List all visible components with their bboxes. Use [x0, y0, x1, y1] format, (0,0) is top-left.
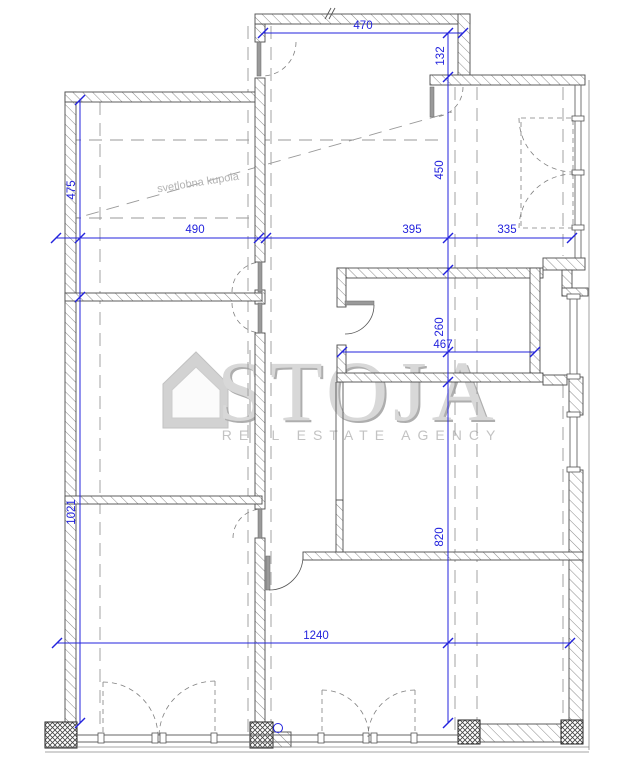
floor-plan-page: STOJA STOJA REAL ESTATE AGENCY svetlobna… — [0, 0, 630, 768]
door-leaf — [430, 87, 434, 117]
wall-segment — [543, 258, 585, 270]
door-swing — [103, 682, 158, 737]
door-swing — [322, 690, 369, 737]
dim-label-1240: 1240 — [303, 630, 329, 642]
wall-segment — [530, 268, 540, 382]
skylight-label: svetlobna kupola — [156, 170, 240, 195]
dim-label-450: 450 — [434, 160, 446, 179]
door-leaf — [258, 303, 262, 333]
dim-label-335: 335 — [497, 224, 516, 236]
jamb — [318, 733, 324, 743]
column — [458, 720, 480, 744]
wall-segment — [255, 538, 265, 735]
jamb — [567, 294, 580, 299]
jamb — [152, 733, 158, 743]
door-swing — [232, 303, 262, 333]
floor-plan-svg: STOJA STOJA REAL ESTATE AGENCY svetlobna… — [0, 0, 630, 768]
wall-segment — [65, 92, 262, 102]
wall-segment — [569, 470, 583, 555]
wall-segment — [65, 496, 262, 504]
door-swing — [519, 118, 573, 172]
jamb — [211, 733, 217, 743]
wall-segment — [430, 75, 585, 85]
jamb — [567, 467, 580, 472]
door-leaf — [258, 509, 262, 538]
dimension-labels: 470 132 475 490 395 335 450 260 467 1021… — [66, 20, 517, 642]
wall-segment — [337, 373, 543, 382]
jamb — [411, 733, 417, 743]
door-leaf — [257, 42, 261, 76]
wall-segment — [337, 268, 346, 307]
watermark: STOJA STOJA REAL ESTATE AGENCY — [163, 343, 502, 443]
jamb — [572, 170, 584, 175]
door-leaf — [345, 301, 374, 305]
door-swing — [159, 681, 215, 737]
dim-label-1021: 1021 — [66, 499, 78, 525]
door-leaf — [266, 556, 270, 590]
dim-label-132: 132 — [435, 46, 447, 65]
door-swing — [519, 174, 573, 228]
marker-circle — [274, 724, 283, 733]
door-swing — [233, 509, 262, 538]
column — [561, 720, 583, 744]
jamb — [98, 733, 104, 743]
jamb — [363, 733, 369, 743]
jamb — [572, 116, 584, 121]
wall-segment — [336, 500, 343, 552]
door-leaves — [257, 42, 434, 590]
jamb — [567, 374, 580, 379]
door-swing — [345, 305, 374, 334]
door-swing — [262, 42, 296, 76]
jamb — [572, 225, 584, 230]
dim-label-260: 260 — [434, 317, 446, 336]
wall-segment — [303, 552, 583, 560]
dim-label-470: 470 — [353, 20, 372, 32]
dim-label-820: 820 — [434, 527, 446, 546]
wall-segment — [569, 377, 583, 415]
dim-label-490: 490 — [185, 224, 204, 236]
wall-segment — [255, 333, 265, 509]
wall-step — [273, 732, 291, 747]
door-swing — [368, 690, 415, 737]
door-swing — [232, 262, 262, 292]
door-swing — [269, 556, 303, 590]
wall-segment — [65, 293, 262, 301]
wall-segment — [337, 268, 543, 278]
jamb — [160, 733, 166, 743]
wall-segment — [543, 375, 567, 385]
jamb — [371, 733, 377, 743]
dim-label-475: 475 — [66, 180, 78, 199]
dim-label-467: 467 — [433, 339, 452, 351]
wall-segment — [458, 14, 470, 77]
door-recess — [521, 118, 573, 228]
column — [45, 722, 77, 748]
door-leaf — [258, 262, 262, 292]
jamb — [567, 412, 580, 417]
dim-label-395: 395 — [402, 224, 421, 236]
